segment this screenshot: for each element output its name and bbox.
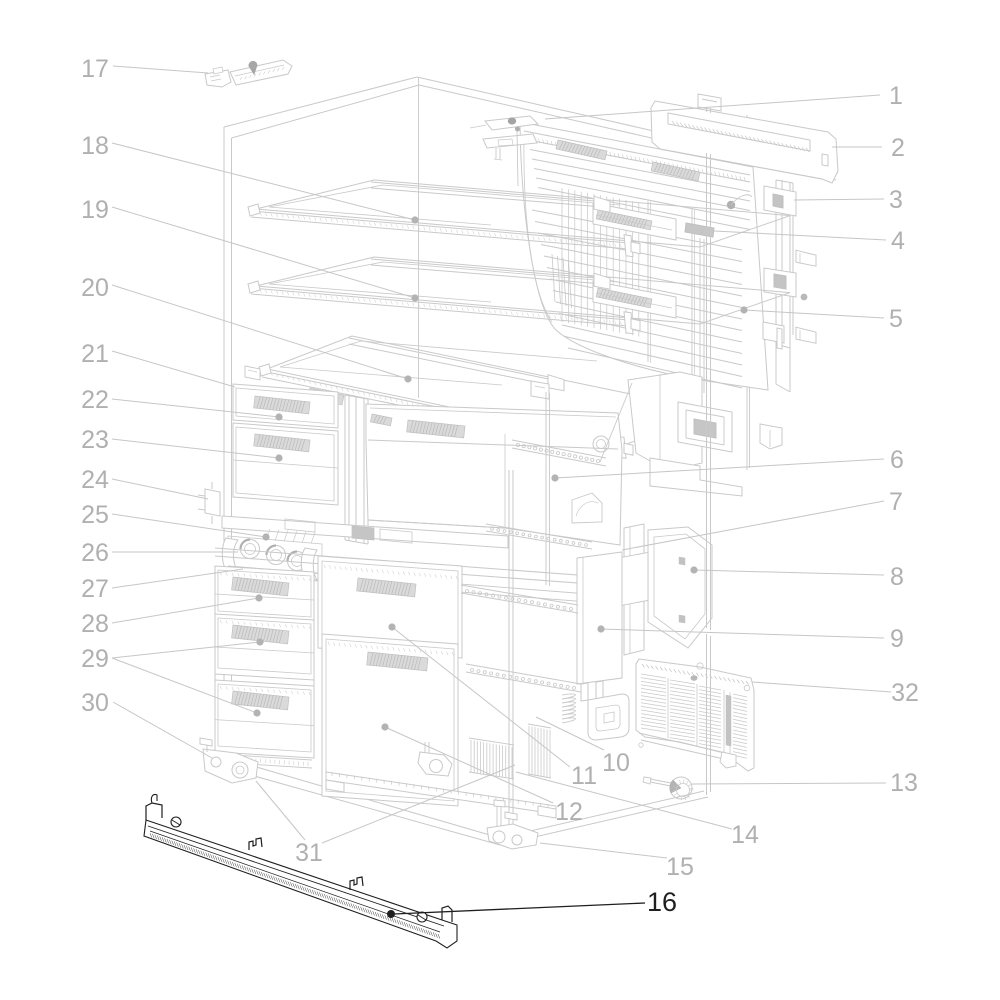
svg-text:16: 16: [647, 887, 677, 917]
svg-text:29: 29: [81, 645, 109, 673]
svg-text:15: 15: [666, 853, 694, 881]
svg-text:1: 1: [889, 82, 903, 110]
svg-text:24: 24: [81, 466, 109, 494]
svg-text:17: 17: [81, 55, 109, 83]
svg-text:13: 13: [890, 769, 918, 797]
svg-text:26: 26: [81, 539, 109, 567]
svg-text:7: 7: [889, 488, 903, 516]
svg-text:30: 30: [81, 689, 109, 717]
svg-text:27: 27: [81, 575, 109, 603]
svg-text:5: 5: [889, 305, 903, 333]
svg-text:18: 18: [81, 132, 109, 160]
svg-text:23: 23: [81, 426, 109, 454]
svg-text:3: 3: [889, 186, 903, 214]
svg-text:4: 4: [891, 227, 905, 255]
svg-text:32: 32: [891, 679, 919, 707]
svg-text:22: 22: [81, 386, 109, 414]
svg-text:25: 25: [81, 501, 109, 529]
svg-text:14: 14: [731, 821, 759, 849]
svg-text:28: 28: [81, 610, 109, 638]
svg-text:2: 2: [891, 134, 905, 162]
svg-text:21: 21: [81, 340, 109, 368]
svg-text:6: 6: [890, 446, 904, 474]
svg-text:19: 19: [81, 196, 109, 224]
svg-text:12: 12: [555, 798, 583, 826]
svg-text:8: 8: [890, 563, 904, 591]
svg-text:11: 11: [571, 762, 597, 790]
svg-text:9: 9: [890, 625, 904, 653]
svg-text:31: 31: [295, 839, 323, 867]
svg-text:10: 10: [602, 749, 630, 777]
svg-text:20: 20: [81, 274, 109, 302]
